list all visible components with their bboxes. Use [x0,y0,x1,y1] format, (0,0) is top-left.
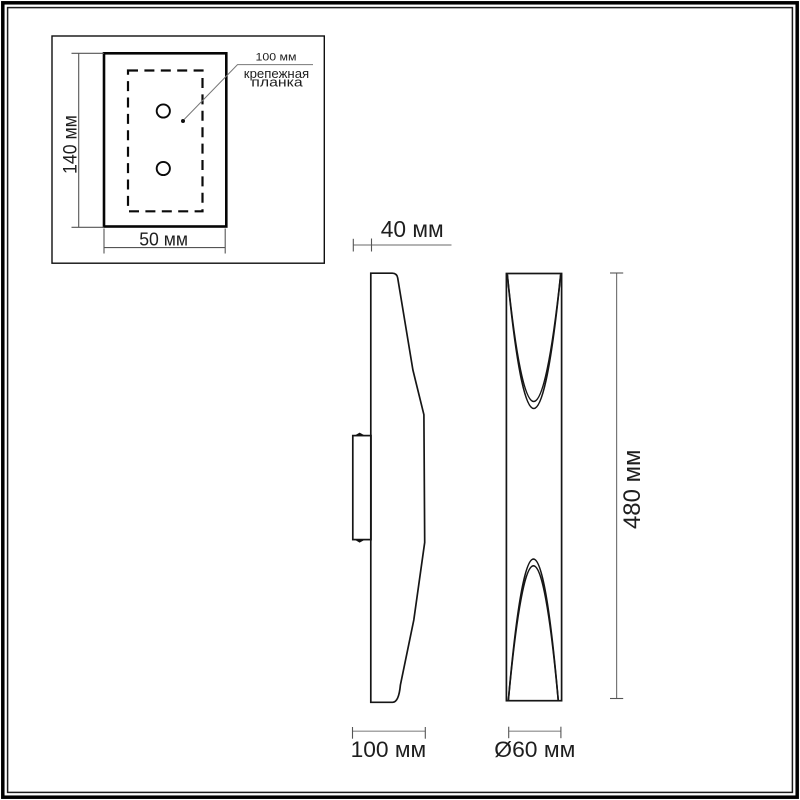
svg-text:планка: планка [251,76,302,90]
svg-text:480 мм: 480 мм [619,450,646,530]
svg-text:40 мм: 40 мм [381,216,444,242]
svg-text:50 мм: 50 мм [139,230,188,250]
svg-text:140 мм: 140 мм [60,115,81,174]
svg-text:100 мм: 100 мм [256,52,297,64]
svg-text:Ø60 мм: Ø60 мм [494,737,575,762]
svg-text:100 мм: 100 мм [351,737,427,762]
